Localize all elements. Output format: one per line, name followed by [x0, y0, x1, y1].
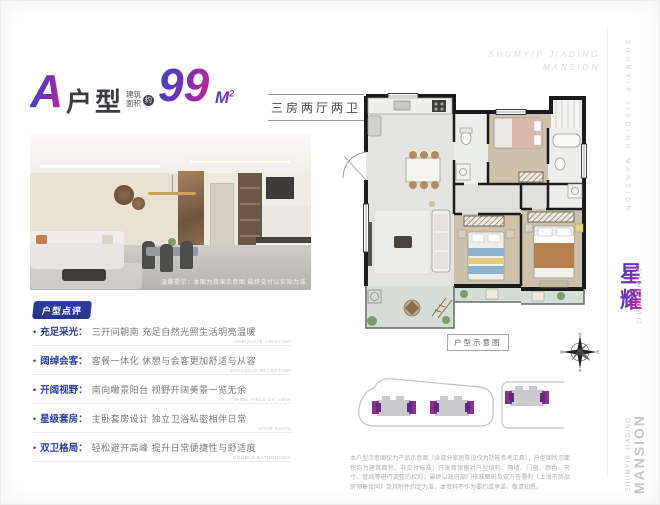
area-unit-letter: M — [215, 88, 229, 107]
bullet-icon: • — [33, 327, 36, 337]
compass-icon: N E S W — [560, 332, 600, 372]
review-item: •开阔视野：南向瞰景阳台 视野开阔美景一览无余 WIDE FIELD OF VI… — [33, 382, 291, 404]
floorplan-poster: A 户型 建筑 面积 约 99 M2 三房两厅两卫 SHUMYIP JIADIN… — [0, 0, 660, 505]
building-block — [505, 386, 549, 406]
review-item: •星级套房：主卧套房设计 独立卫浴私密相伴日常 STAR SUITE — [33, 411, 291, 433]
photo-pendant-light — [148, 192, 196, 195]
review-title: 星级套房： — [40, 411, 88, 425]
brand-logo-pinyin: XING YAO — [634, 268, 643, 326]
building-block — [372, 396, 416, 416]
area-prefix: 建筑 面积 — [126, 90, 141, 109]
photo-sofa — [30, 243, 124, 269]
review-text: 南向瞰景阳台 视野开阔美景一览无余 — [92, 383, 247, 396]
review-title: 双卫格局： — [40, 440, 88, 454]
bullet-icon: • — [33, 443, 36, 453]
strip-bottom-brand: SHUMYIP JIADING MANSION — [586, 404, 660, 504]
review-text: 主卧套房设计 独立卫浴私密相伴日常 — [92, 412, 247, 425]
disclaimer-text: 本户型示意图仅为产品示意图（含部分家居陈设仅为功能参考工具），户型图所示面积均为… — [350, 455, 570, 493]
photo-pendant-cord — [172, 175, 173, 193]
site-plan — [352, 372, 564, 447]
bullet-icon: • — [33, 414, 36, 424]
review-en: WIDE FIELD OF VIEW — [85, 398, 291, 403]
brand-top-right-line1: SHUMYIP JIADING — [420, 48, 600, 61]
area-unit-sup: 2 — [229, 88, 234, 98]
photo-wall-art-2 — [132, 197, 145, 210]
divider — [33, 461, 291, 462]
photo-door — [210, 183, 234, 249]
photo-coffee-table — [62, 269, 106, 281]
review-badge: 户型点评 — [32, 301, 92, 319]
photo-marble-column — [178, 171, 204, 249]
bullet-icon: • — [33, 385, 36, 395]
photo-range-hood — [266, 177, 294, 199]
divider — [33, 345, 291, 346]
area-prefix-line1: 建筑 — [126, 90, 141, 99]
area-value: 99 — [158, 62, 209, 108]
review-title: 充足采光： — [40, 324, 88, 338]
brand-top-right: SHUMYIP JIADING MANSION — [420, 48, 600, 74]
review-title: 开阔视野： — [40, 382, 88, 396]
strip-vertical-text: SHUMYIP JIADING MANSION — [624, 40, 630, 214]
review-item: •充足采光：三开间朝南 充足自然光照生活明亮温暖 ADEQUATE LIGHTI… — [33, 324, 291, 346]
review-en: DOUBLE BATHROOMS — [85, 456, 291, 461]
photo-cove-light — [40, 165, 160, 168]
area-prefix-line2: 面积 — [126, 99, 141, 108]
review-item: •双卫格局：轻松避开高峰 提升日常便捷性与舒适度 DOUBLE BATHROOM… — [33, 440, 291, 462]
photo-cushion-2 — [102, 235, 113, 244]
review-en: SPACIOUS RECEPTION — [85, 369, 291, 374]
review-title: 阔绰会客： — [40, 353, 88, 367]
floor-plan — [336, 84, 600, 332]
building-block — [517, 412, 546, 416]
review-text: 轻松避开高峰 提升日常便捷性与舒适度 — [92, 441, 257, 454]
review-en: ADEQUATE LIGHTING — [85, 340, 291, 345]
review-en: STAR SUITE — [85, 427, 291, 432]
divider — [33, 374, 291, 375]
unit-label: 户型 — [66, 82, 124, 119]
brand-top-right-line2: MANSION — [420, 61, 600, 74]
unit-letter: A — [30, 68, 63, 114]
photo-dining-chair-3 — [180, 241, 193, 269]
review-item: •阔绰会客：客餐一体化 休憩与会客更加舒适与从容 SPACIOUS RECEPT… — [33, 353, 291, 375]
building-block — [430, 396, 474, 416]
bullet-icon: • — [33, 356, 36, 366]
svg-text:E: E — [596, 350, 599, 355]
photo-ceiling — [30, 135, 311, 175]
divider — [33, 403, 291, 404]
plan-label: 户型示意图 — [447, 334, 509, 351]
photo-caption: 温馨提示：本图为效果示意图 最终交付以实际为准 — [161, 277, 306, 286]
svg-text:N: N — [578, 332, 581, 337]
area-approx-badge: 约 — [143, 95, 154, 106]
svg-text:S: S — [578, 368, 581, 372]
photo-dining-chair-2 — [160, 244, 173, 272]
photo-cushion — [36, 235, 47, 244]
review-text: 客餐一体化 休憩与会客更加舒适与从容 — [92, 354, 257, 367]
photo-backsplash — [262, 205, 311, 237]
strip-bottom-line2: MANSION — [632, 414, 646, 494]
area-unit: M2 — [215, 88, 234, 108]
divider — [33, 432, 291, 433]
photo-cove-light-2 — [190, 161, 290, 163]
photo-wall-art — [114, 185, 134, 205]
interior-photo: 温馨提示：本图为效果示意图 最终交付以实际为准 — [30, 135, 311, 290]
review-text: 三开间朝南 充足自然光照生活明亮温暖 — [92, 325, 257, 338]
